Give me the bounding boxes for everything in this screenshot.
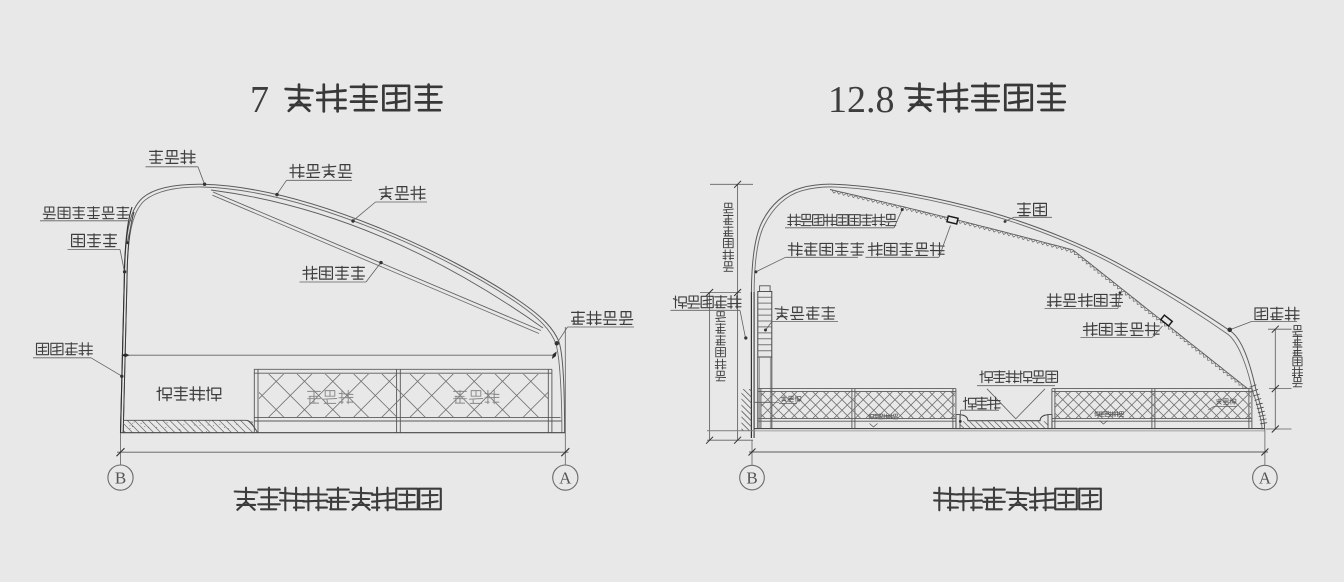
svg-text:A: A (559, 469, 572, 488)
svg-text:12.8: 12.8 (828, 79, 895, 121)
svg-text:B: B (746, 468, 757, 487)
svg-text:A: A (1259, 468, 1272, 487)
svg-text:B: B (115, 469, 126, 488)
svg-text:7: 7 (250, 79, 269, 121)
